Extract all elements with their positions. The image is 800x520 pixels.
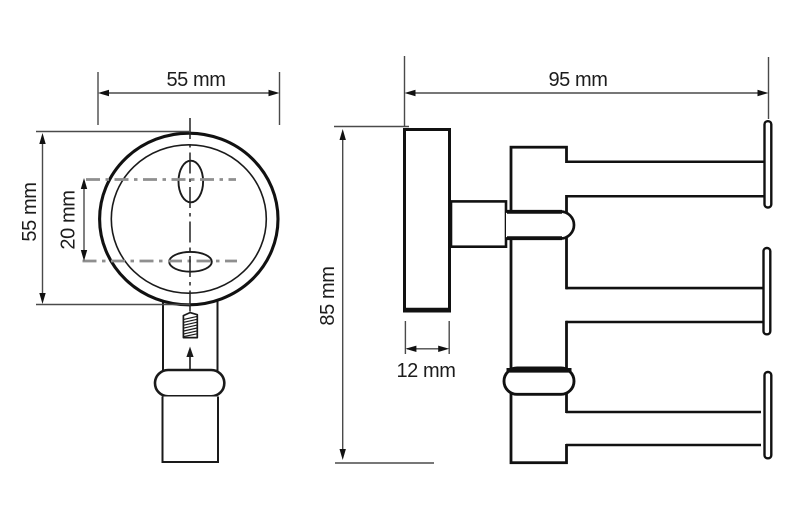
svg-text:20 mm: 20 mm xyxy=(58,190,80,249)
svg-text:12 mm: 12 mm xyxy=(396,360,455,382)
svg-text:95 mm: 95 mm xyxy=(548,69,607,91)
svg-text:55 mm: 55 mm xyxy=(166,69,225,91)
svg-text:85 mm: 85 mm xyxy=(317,266,339,325)
svg-text:55 mm: 55 mm xyxy=(19,182,41,241)
